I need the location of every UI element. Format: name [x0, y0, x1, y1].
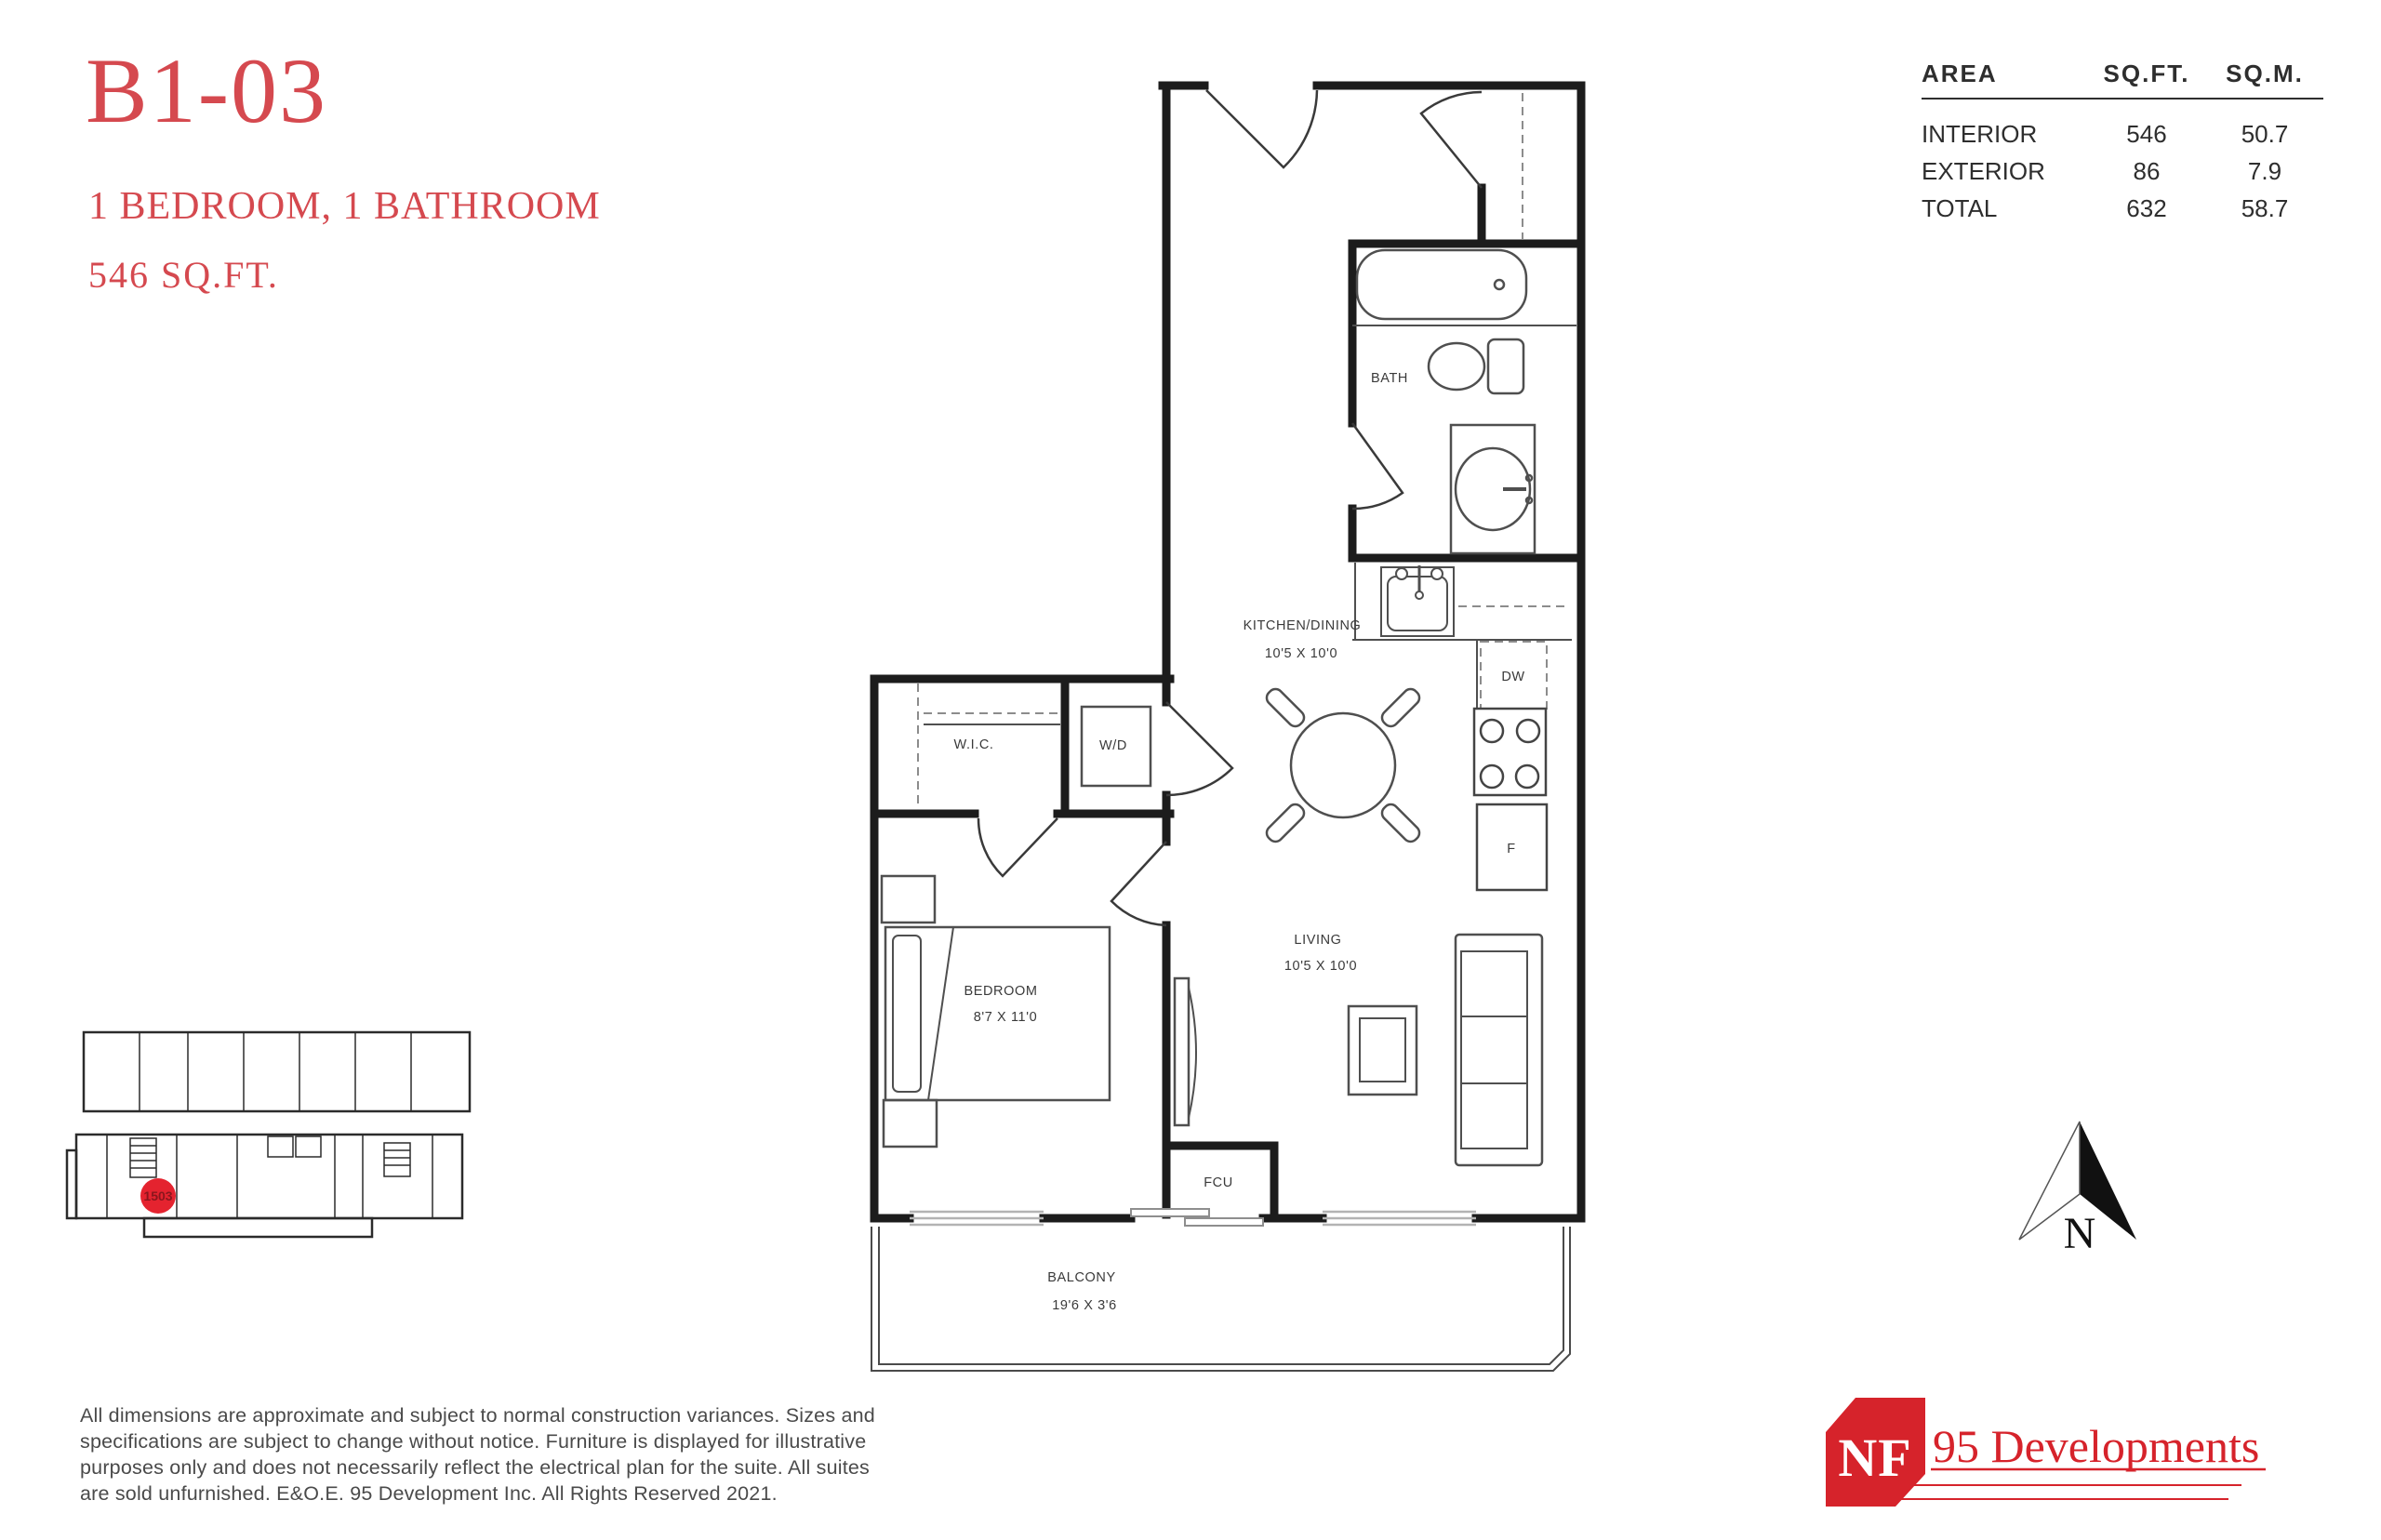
row-sqm: 50.7 — [2206, 120, 2323, 149]
north-label: N — [2064, 1209, 2096, 1258]
row-label: INTERIOR — [1922, 120, 2087, 149]
disclaimer-line: are sold unfurnished. E&O.E. 95 Developm… — [80, 1480, 880, 1507]
keyplan-outline — [67, 1032, 470, 1237]
nightstand-icon — [882, 876, 937, 1147]
disclaimer-line: purposes only and does not necessarily r… — [80, 1454, 880, 1480]
logo-underlines — [1894, 1469, 2266, 1499]
disclaimer-line: All dimensions are approximate and subje… — [80, 1402, 880, 1428]
table-row: INTERIOR 546 50.7 — [1922, 120, 2323, 149]
room-label-wd: W/D — [1099, 738, 1127, 753]
row-label: EXTERIOR — [1922, 157, 2087, 186]
room-label-bath: BATH — [1371, 371, 1408, 386]
floorplan-page: B1-03 1 BEDROOM, 1 BATHROOM 546 SQ.FT. A… — [0, 0, 2381, 1540]
room-label-kitchen: KITCHEN/DINING — [1244, 618, 1362, 633]
dashed-details — [918, 93, 1568, 810]
sliding-door-icon — [1131, 1209, 1263, 1226]
bedroom-door-icon — [1111, 842, 1166, 925]
wic-door-icon — [978, 818, 1057, 876]
balcony-outline — [871, 1227, 1570, 1371]
thin-lines — [924, 325, 1576, 724]
disclaimer-text: All dimensions are approximate and subje… — [80, 1402, 880, 1507]
row-sqft: 546 — [2087, 120, 2206, 149]
developer-logo: NF 95 Developments — [1821, 1387, 2342, 1527]
floor-plan-drawing: BATH KITCHEN/DINING 10'5 X 10'0 W.I.C. W… — [837, 37, 1600, 1386]
room-label-fridge: F — [1507, 842, 1515, 856]
room-dims-balcony: 19'6 X 3'6 — [1052, 1298, 1117, 1313]
stove-icon — [1474, 709, 1546, 795]
closet-door-icon — [1421, 92, 1482, 188]
walls — [874, 86, 1581, 1218]
dining-table-icon — [1264, 686, 1423, 845]
table-row: TOTAL 632 58.7 — [1922, 194, 2323, 223]
col-header-sqm: SQ.M. — [2206, 60, 2323, 88]
entry-door-icon — [1206, 90, 1317, 167]
room-dims-living: 10'5 X 10'0 — [1284, 959, 1357, 974]
north-arrow-icon: N — [2000, 1111, 2162, 1265]
coffee-table-icon — [1349, 1006, 1417, 1095]
toilet-icon — [1429, 339, 1523, 393]
row-sqm: 7.9 — [2206, 157, 2323, 186]
area-table-header: AREA SQ.FT. SQ.M. — [1922, 60, 2323, 88]
logo-company-name: 95 Developments — [1933, 1420, 2259, 1472]
room-label-living: LIVING — [1294, 933, 1341, 948]
col-header-area: AREA — [1922, 60, 2087, 88]
key-plan: 1503 — [47, 997, 484, 1276]
disclaimer-line: specifications are subject to change wit… — [80, 1428, 880, 1454]
unit-code: B1-03 — [86, 37, 327, 144]
row-label: TOTAL — [1922, 194, 2087, 223]
room-label-fcu: FCU — [1204, 1175, 1233, 1190]
bath-door-icon — [1352, 423, 1403, 509]
row-sqft: 632 — [2087, 194, 2206, 223]
doors — [978, 90, 1482, 925]
row-sqft: 86 — [2087, 157, 2206, 186]
room-dims-bedroom: 8'7 X 11'0 — [974, 1010, 1038, 1025]
room-dims-kitchen: 10'5 X 10'0 — [1265, 646, 1337, 661]
sofa-icon — [1456, 935, 1542, 1165]
col-header-sqft: SQ.FT. — [2087, 60, 2206, 88]
row-sqm: 58.7 — [2206, 194, 2323, 223]
room-label-wic: W.I.C. — [953, 737, 993, 752]
tv-icon — [1175, 978, 1196, 1125]
table-rule — [1922, 98, 2323, 100]
room-label-bedroom: BEDROOM — [964, 984, 1037, 999]
unit-type: 1 BEDROOM, 1 BATHROOM — [88, 184, 601, 229]
unit-area: 546 SQ.FT. — [88, 253, 279, 297]
table-row: EXTERIOR 86 7.9 — [1922, 157, 2323, 186]
room-label-dw: DW — [1501, 670, 1524, 684]
logo-badge-text: NF — [1838, 1427, 1911, 1488]
room-label-balcony: BALCONY — [1047, 1270, 1116, 1285]
bathtub-icon — [1357, 250, 1526, 319]
wd-door-icon — [1166, 702, 1232, 795]
kitchen-sink-icon — [1381, 565, 1454, 636]
vanity-sink-icon — [1451, 425, 1535, 553]
area-table: AREA SQ.FT. SQ.M. INTERIOR 546 50.7 EXTE… — [1922, 60, 2323, 232]
unit-location-number: 1503 — [143, 1188, 172, 1203]
